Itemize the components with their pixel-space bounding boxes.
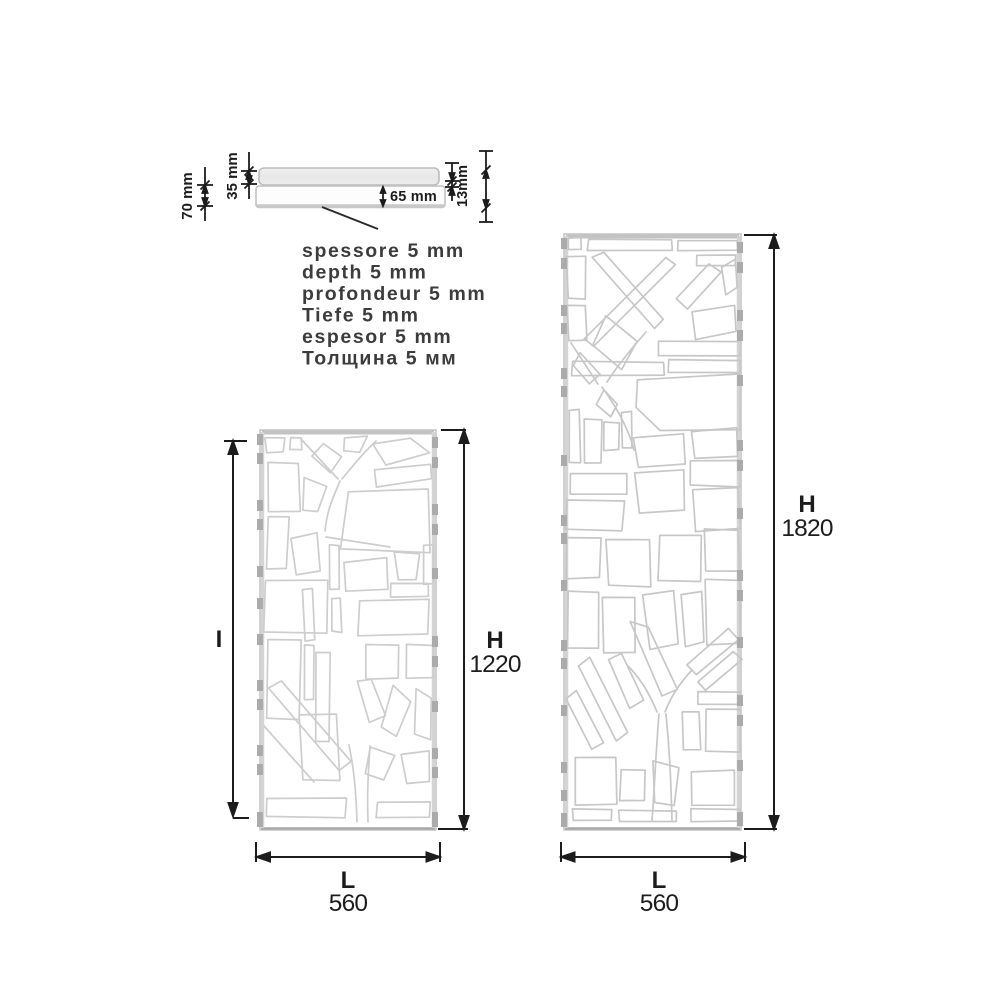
svg-text:Tiefe 5 mm: Tiefe 5 mm <box>302 305 420 327</box>
svg-text:70 mm: 70 mm <box>179 172 196 220</box>
svg-text:35 mm: 35 mm <box>224 152 241 200</box>
svg-text:Толщина 5 мм: Толщина 5 мм <box>302 348 457 370</box>
svg-text:H: H <box>486 627 503 654</box>
svg-text:spessore 5 mm: spessore 5 mm <box>302 240 465 262</box>
svg-text:13mm: 13mm <box>455 165 471 207</box>
svg-text:65 mm: 65 mm <box>390 189 437 205</box>
svg-text:1820: 1820 <box>781 515 832 542</box>
svg-text:1220: 1220 <box>469 651 520 678</box>
svg-text:H: H <box>798 491 815 518</box>
svg-text:profondeur 5 mm: profondeur 5 mm <box>302 283 486 305</box>
svg-text:560: 560 <box>329 890 368 917</box>
svg-text:I: I <box>216 626 223 653</box>
svg-text:560: 560 <box>640 890 679 917</box>
svg-text:depth 5 mm: depth 5 mm <box>302 262 427 284</box>
svg-text:espesor 5 mm: espesor 5 mm <box>302 326 452 348</box>
